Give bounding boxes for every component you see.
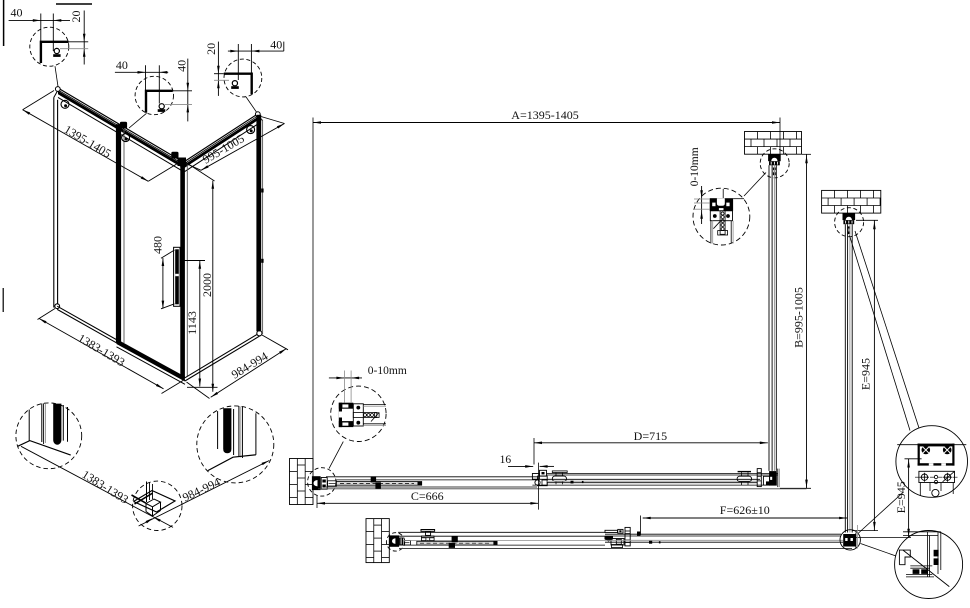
svg-text:40: 40 <box>270 38 282 52</box>
svg-text:40: 40 <box>11 6 23 20</box>
svg-text:1143: 1143 <box>185 311 199 335</box>
svg-text:C=666: C=666 <box>411 489 444 503</box>
svg-text:40: 40 <box>175 60 189 72</box>
svg-text:D=715: D=715 <box>634 429 667 443</box>
svg-text:20: 20 <box>69 11 83 23</box>
svg-text:0-10mm: 0-10mm <box>368 365 407 377</box>
svg-text:0-10mm: 0-10mm <box>689 147 701 186</box>
svg-text:2000: 2000 <box>200 273 214 297</box>
svg-text:20: 20 <box>204 43 218 55</box>
svg-text:40: 40 <box>116 58 128 72</box>
svg-text:B=995-1005: B=995-1005 <box>791 287 805 348</box>
svg-text:480: 480 <box>151 236 165 254</box>
svg-text:A=1395-1405: A=1395-1405 <box>511 108 578 122</box>
svg-text:16: 16 <box>500 454 512 466</box>
svg-text:E=945: E=945 <box>859 358 873 390</box>
svg-text:F=626±10: F=626±10 <box>720 503 770 517</box>
